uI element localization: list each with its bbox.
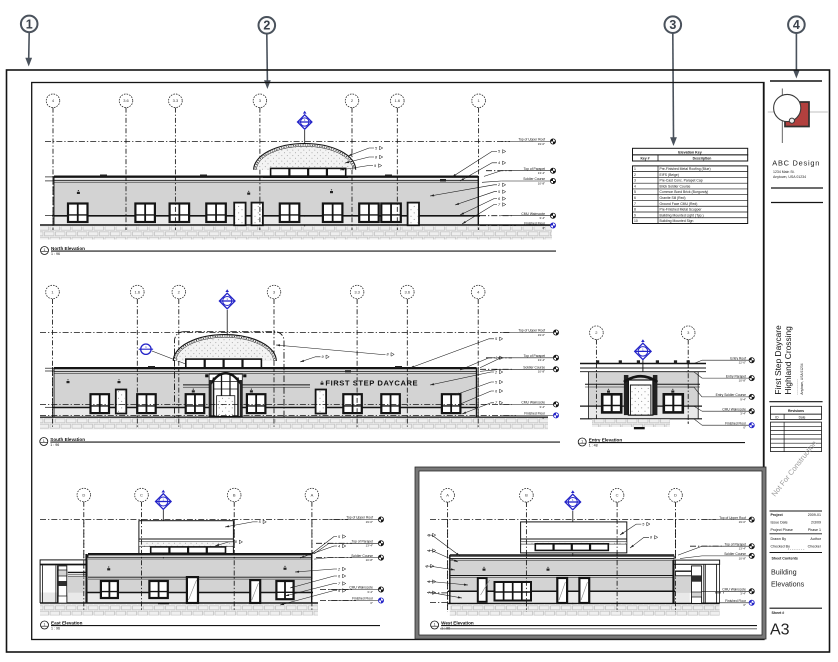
svg-text:Revisions: Revisions [788, 409, 804, 413]
svg-text:3.3: 3.3 [173, 98, 179, 103]
svg-text:1: 1 [581, 439, 583, 443]
svg-text:1.6: 1.6 [135, 289, 141, 294]
svg-text:3'-4": 3'-4" [740, 592, 746, 596]
svg-text:Checker: Checker [808, 544, 822, 548]
svg-text:10: 10 [634, 219, 638, 223]
svg-text:9: 9 [634, 213, 636, 217]
svg-text:7: 7 [634, 202, 636, 206]
svg-text:Elevations: Elevations [771, 580, 805, 589]
svg-text:13'-4": 13'-4" [538, 358, 545, 362]
svg-text:South Elevation: South Elevation [50, 437, 85, 442]
svg-text:3'-4": 3'-4" [740, 412, 746, 416]
svg-text:10'-8": 10'-8" [366, 558, 373, 562]
svg-text:9'-4": 9'-4" [740, 397, 746, 401]
svg-text:1234 Main St.: 1234 Main St. [773, 170, 795, 174]
svg-text:0": 0" [542, 416, 545, 420]
svg-text:First Step Daycare: First Step Daycare [773, 325, 783, 395]
svg-text:B: B [525, 493, 528, 498]
svg-text:10'-8": 10'-8" [739, 379, 746, 383]
svg-text:3: 3 [669, 18, 676, 32]
svg-text:19'-0": 19'-0" [538, 333, 545, 337]
svg-text:8: 8 [634, 208, 636, 212]
svg-text:2: 2 [634, 173, 636, 177]
svg-text:Building Mounted Light (Typ.): Building Mounted Light (Typ.) [660, 213, 704, 217]
svg-text:1.6: 1.6 [395, 98, 401, 103]
svg-text:Building Mounted Sign: Building Mounted Sign [660, 219, 694, 223]
svg-text:- - - - - - - -: - - - - - - - - [795, 379, 799, 394]
svg-text:Anytown, USA 01234: Anytown, USA 01234 [773, 175, 806, 179]
svg-text:Anytown, USA 01234: Anytown, USA 01234 [800, 363, 804, 394]
svg-text:6: 6 [634, 196, 636, 200]
svg-text:3'-4": 3'-4" [539, 216, 545, 220]
svg-text:EIFS (Beige): EIFS (Beige) [660, 173, 679, 177]
svg-text:1: 1 [43, 439, 45, 443]
svg-text:Date: Date [799, 415, 806, 419]
svg-text:Highland Crossing: Highland Crossing [783, 326, 793, 395]
svg-text:2/3/09: 2/3/09 [811, 520, 821, 524]
svg-text:12'-0": 12'-0" [739, 361, 746, 365]
svg-text:1: 1 [634, 167, 636, 171]
svg-text:C: C [616, 493, 619, 498]
svg-text:- - - - - - - -: - - - - - - - - [788, 548, 805, 552]
svg-text:East Elevation: East Elevation [51, 620, 83, 625]
svg-text:1 : 96: 1 : 96 [51, 627, 60, 631]
svg-text:4: 4 [338, 544, 340, 548]
svg-text:4: 4 [793, 18, 800, 32]
svg-text:Common Bond Brick (Burgundy): Common Bond Brick (Burgundy) [660, 190, 709, 194]
svg-text:1: 1 [434, 622, 436, 626]
svg-text:D: D [674, 493, 677, 498]
svg-text:1 : 48: 1 : 48 [589, 444, 598, 448]
svg-text:0": 0" [370, 601, 373, 605]
svg-text:Brick Soldier Course: Brick Soldier Course [660, 184, 691, 188]
svg-text:A: A [311, 492, 314, 497]
svg-text:Project: Project [771, 513, 784, 517]
svg-text:Drawn By: Drawn By [771, 537, 787, 541]
svg-text:19'-0": 19'-0" [366, 520, 373, 524]
svg-text:1 : 96: 1 : 96 [50, 443, 59, 447]
svg-text:D: D [82, 492, 85, 497]
svg-text:Phase 1: Phase 1 [808, 528, 821, 532]
svg-text:West Elevation: West Elevation [441, 620, 474, 625]
svg-text:B: B [233, 492, 236, 497]
svg-text:1: 1 [26, 17, 33, 31]
svg-text:3.3: 3.3 [354, 289, 360, 294]
svg-text:Author: Author [810, 537, 821, 541]
svg-text:13'-4": 13'-4" [739, 547, 746, 551]
svg-text:4: 4 [428, 549, 430, 553]
svg-text:13'-4": 13'-4" [366, 544, 373, 548]
svg-text:5: 5 [634, 190, 636, 194]
svg-text:Sheet #: Sheet # [772, 611, 785, 615]
svg-text:Key #: Key # [640, 157, 649, 161]
svg-text:2: 2 [263, 19, 270, 33]
svg-text:Pre-Finished Metal Roofing (Bl: Pre-Finished Metal Roofing (Blue) [660, 167, 711, 171]
svg-text:Ground Face CMU (Red): Ground Face CMU (Red) [660, 202, 698, 206]
svg-text:10'-8": 10'-8" [538, 370, 545, 374]
svg-text:10'-8": 10'-8" [739, 556, 746, 560]
svg-text:1: 1 [44, 622, 46, 626]
svg-text:A3: A3 [770, 622, 790, 639]
svg-text:0": 0" [542, 226, 545, 230]
svg-text:Project Phase: Project Phase [771, 528, 793, 532]
svg-text:ABC Design: ABC Design [772, 158, 820, 167]
svg-text:3: 3 [634, 179, 636, 183]
svg-text:3'-4": 3'-4" [367, 590, 373, 594]
svg-text:Issue Date: Issue Date [771, 520, 788, 524]
svg-text:1: 1 [44, 248, 46, 252]
svg-text:3.6: 3.6 [405, 289, 411, 294]
svg-text:A: A [446, 493, 449, 498]
svg-text:19'-0": 19'-0" [538, 142, 545, 146]
svg-text:Pre-Cast Conc. Parapet Cap: Pre-Cast Conc. Parapet Cap [660, 179, 703, 183]
svg-text:10'-8": 10'-8" [538, 181, 545, 185]
svg-text:FIRST STEP DAYCARE: FIRST STEP DAYCARE [325, 379, 417, 388]
svg-text:Granite Sill (Red): Granite Sill (Red) [660, 196, 686, 200]
svg-text:Sheet Contents: Sheet Contents [772, 556, 798, 560]
svg-text:19'-0": 19'-0" [739, 520, 746, 524]
svg-text:North Elevation: North Elevation [51, 246, 85, 251]
svg-text:C: C [140, 492, 143, 497]
svg-text:Building: Building [771, 568, 797, 577]
svg-text:3'-4": 3'-4" [539, 405, 545, 409]
svg-text:3.6: 3.6 [123, 98, 129, 103]
svg-text:Entry Elevation: Entry Elevation [589, 437, 623, 442]
svg-text:0": 0" [743, 603, 746, 607]
svg-text:4: 4 [498, 161, 500, 165]
svg-text:1 : 96: 1 : 96 [51, 252, 60, 256]
svg-text:4: 4 [634, 184, 636, 188]
svg-text:2009-01: 2009-01 [808, 513, 821, 517]
svg-text:0": 0" [743, 426, 746, 430]
svg-text:Pre-Finished Metal Scupper: Pre-Finished Metal Scupper [660, 208, 703, 212]
svg-text:13'-4": 13'-4" [538, 171, 545, 175]
svg-text:Description: Description [693, 157, 712, 161]
svg-text:Elevation Key: Elevation Key [678, 150, 702, 154]
